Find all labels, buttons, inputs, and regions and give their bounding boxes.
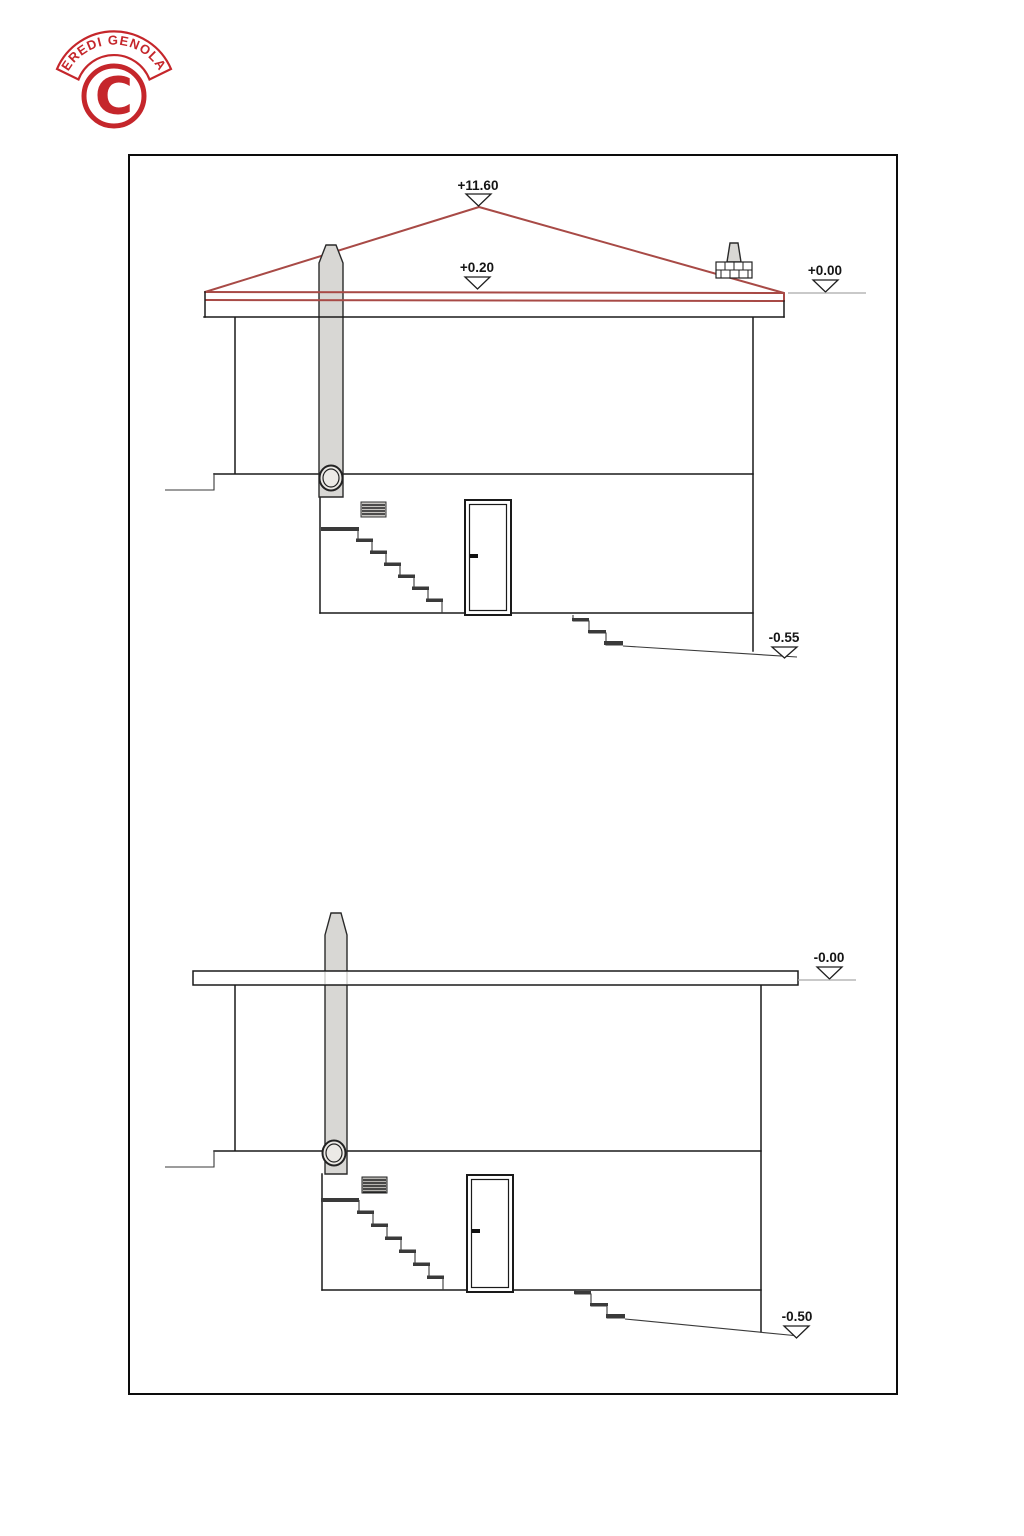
ground-level-triangle-icon: [817, 967, 842, 979]
level-marker-ground-upper: +0.00: [788, 263, 866, 293]
upper-vent-grille: [361, 502, 386, 517]
drawing-sheet-page: EREDI GENOLA C: [0, 0, 1024, 1536]
lower-chimney: [325, 913, 347, 1174]
level-marker-ground-lower: -0.00: [798, 950, 856, 980]
level-marker-yard-upper: -0.55: [769, 630, 800, 658]
lower-door-handle: [472, 1229, 480, 1233]
upper-ground-slope: [623, 646, 797, 657]
yard-level-label: -0.55: [769, 630, 800, 645]
ground-level-label: +0.00: [808, 263, 842, 278]
lower-left-ground-step: [165, 1151, 214, 1167]
level-marker-ridge: +11.60: [458, 178, 499, 206]
lower-exterior-treads: [574, 1291, 625, 1318]
ground-level-label: -0.00: [814, 950, 845, 965]
level-marker-eave: +0.20: [460, 260, 494, 289]
yard-level-triangle-icon: [784, 1326, 809, 1338]
lower-ground-slope: [625, 1319, 799, 1336]
lower-flue-pipe: [323, 1141, 346, 1166]
level-marker-yard-lower: -0.50: [782, 1309, 813, 1338]
ground-level-triangle-icon: [813, 280, 838, 292]
lower-door: [467, 1175, 513, 1292]
upper-chimney: [319, 245, 343, 497]
upper-exterior-treads: [572, 618, 623, 645]
upper-eave-slab-fill: [205, 292, 784, 317]
eave-level-triangle-icon: [465, 277, 490, 289]
upper-stairs-treads: [321, 527, 443, 602]
ridge-level-triangle-icon: [466, 194, 491, 206]
upper-flue-pipe: [320, 466, 343, 491]
lower-vent-grille: [362, 1177, 387, 1193]
lower-stairs-treads: [321, 1198, 444, 1279]
yard-level-label: -0.50: [782, 1309, 813, 1324]
upper-door: [465, 500, 511, 615]
ridge-level-label: +11.60: [458, 178, 499, 193]
lower-roof-slab: [193, 971, 798, 985]
section-drawings-canvas: +11.60 +0.20 +0.00 -0.55: [0, 0, 1024, 1536]
eave-level-label: +0.20: [460, 260, 494, 275]
upper-roof-slopes: [205, 207, 784, 293]
upper-left-ground-step: [165, 473, 214, 490]
upper-roof-chimney: [716, 243, 752, 278]
upper-door-handle: [470, 554, 478, 558]
